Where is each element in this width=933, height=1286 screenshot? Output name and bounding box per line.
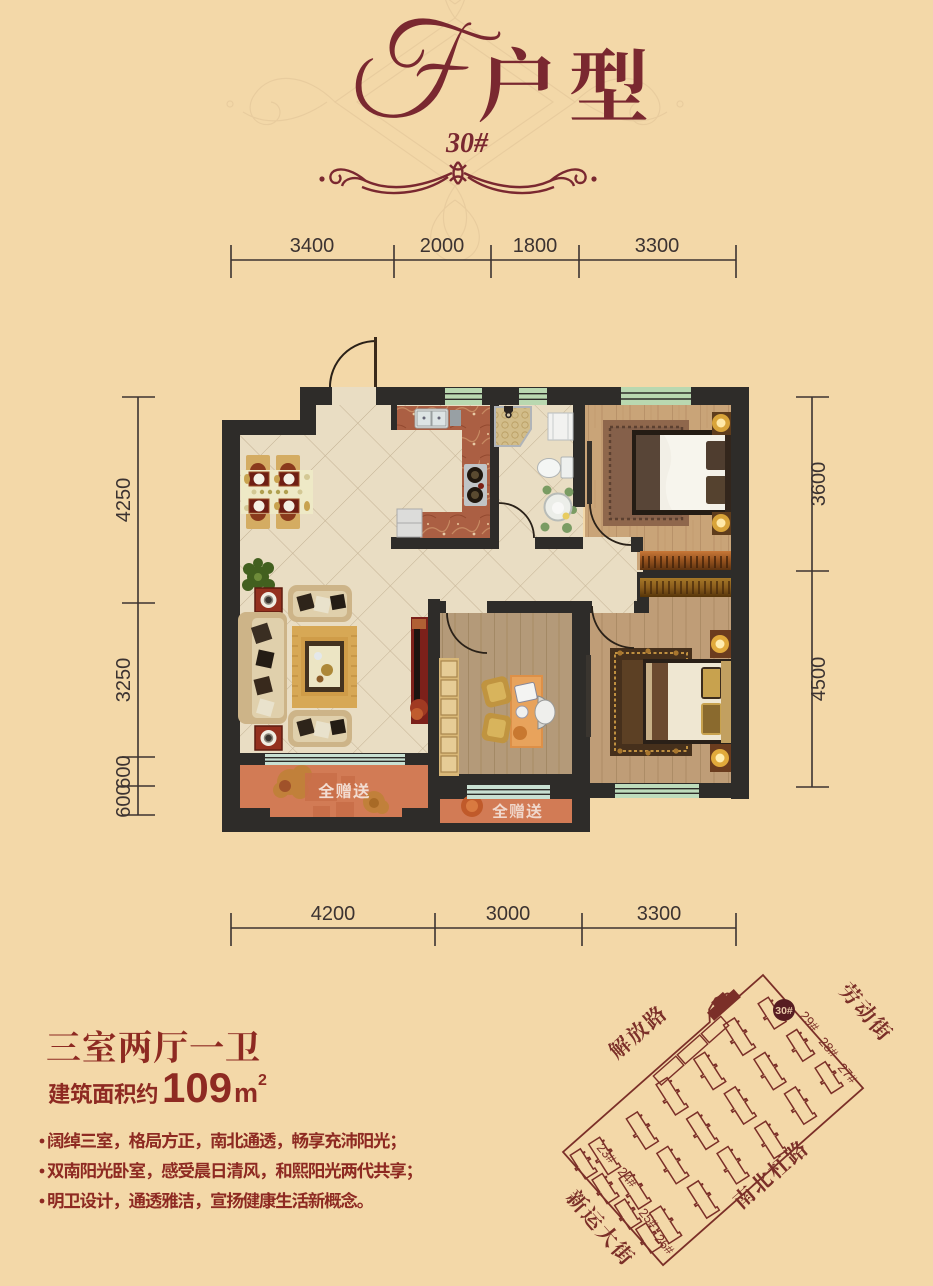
svg-text:4250: 4250 (113, 478, 135, 523)
svg-text:2000: 2000 (420, 235, 465, 257)
svg-text:30#: 30# (445, 128, 489, 159)
svg-text:4200: 4200 (311, 903, 356, 925)
svg-text:109: 109 (162, 1064, 232, 1111)
svg-text:600: 600 (113, 755, 135, 788)
svg-text:3000: 3000 (486, 903, 531, 925)
svg-text:600: 600 (113, 784, 135, 817)
svg-text:m: m (234, 1078, 258, 1108)
svg-text:3250: 3250 (113, 658, 135, 703)
svg-text:3400: 3400 (290, 235, 335, 257)
svg-text:2: 2 (258, 1072, 267, 1089)
svg-text:3300: 3300 (635, 235, 680, 257)
svg-text:30#: 30# (775, 1005, 793, 1017)
svg-text:3300: 3300 (637, 903, 682, 925)
svg-text:4500: 4500 (808, 657, 830, 702)
svg-text:3600: 3600 (808, 462, 830, 507)
svg-text:1800: 1800 (513, 235, 558, 257)
